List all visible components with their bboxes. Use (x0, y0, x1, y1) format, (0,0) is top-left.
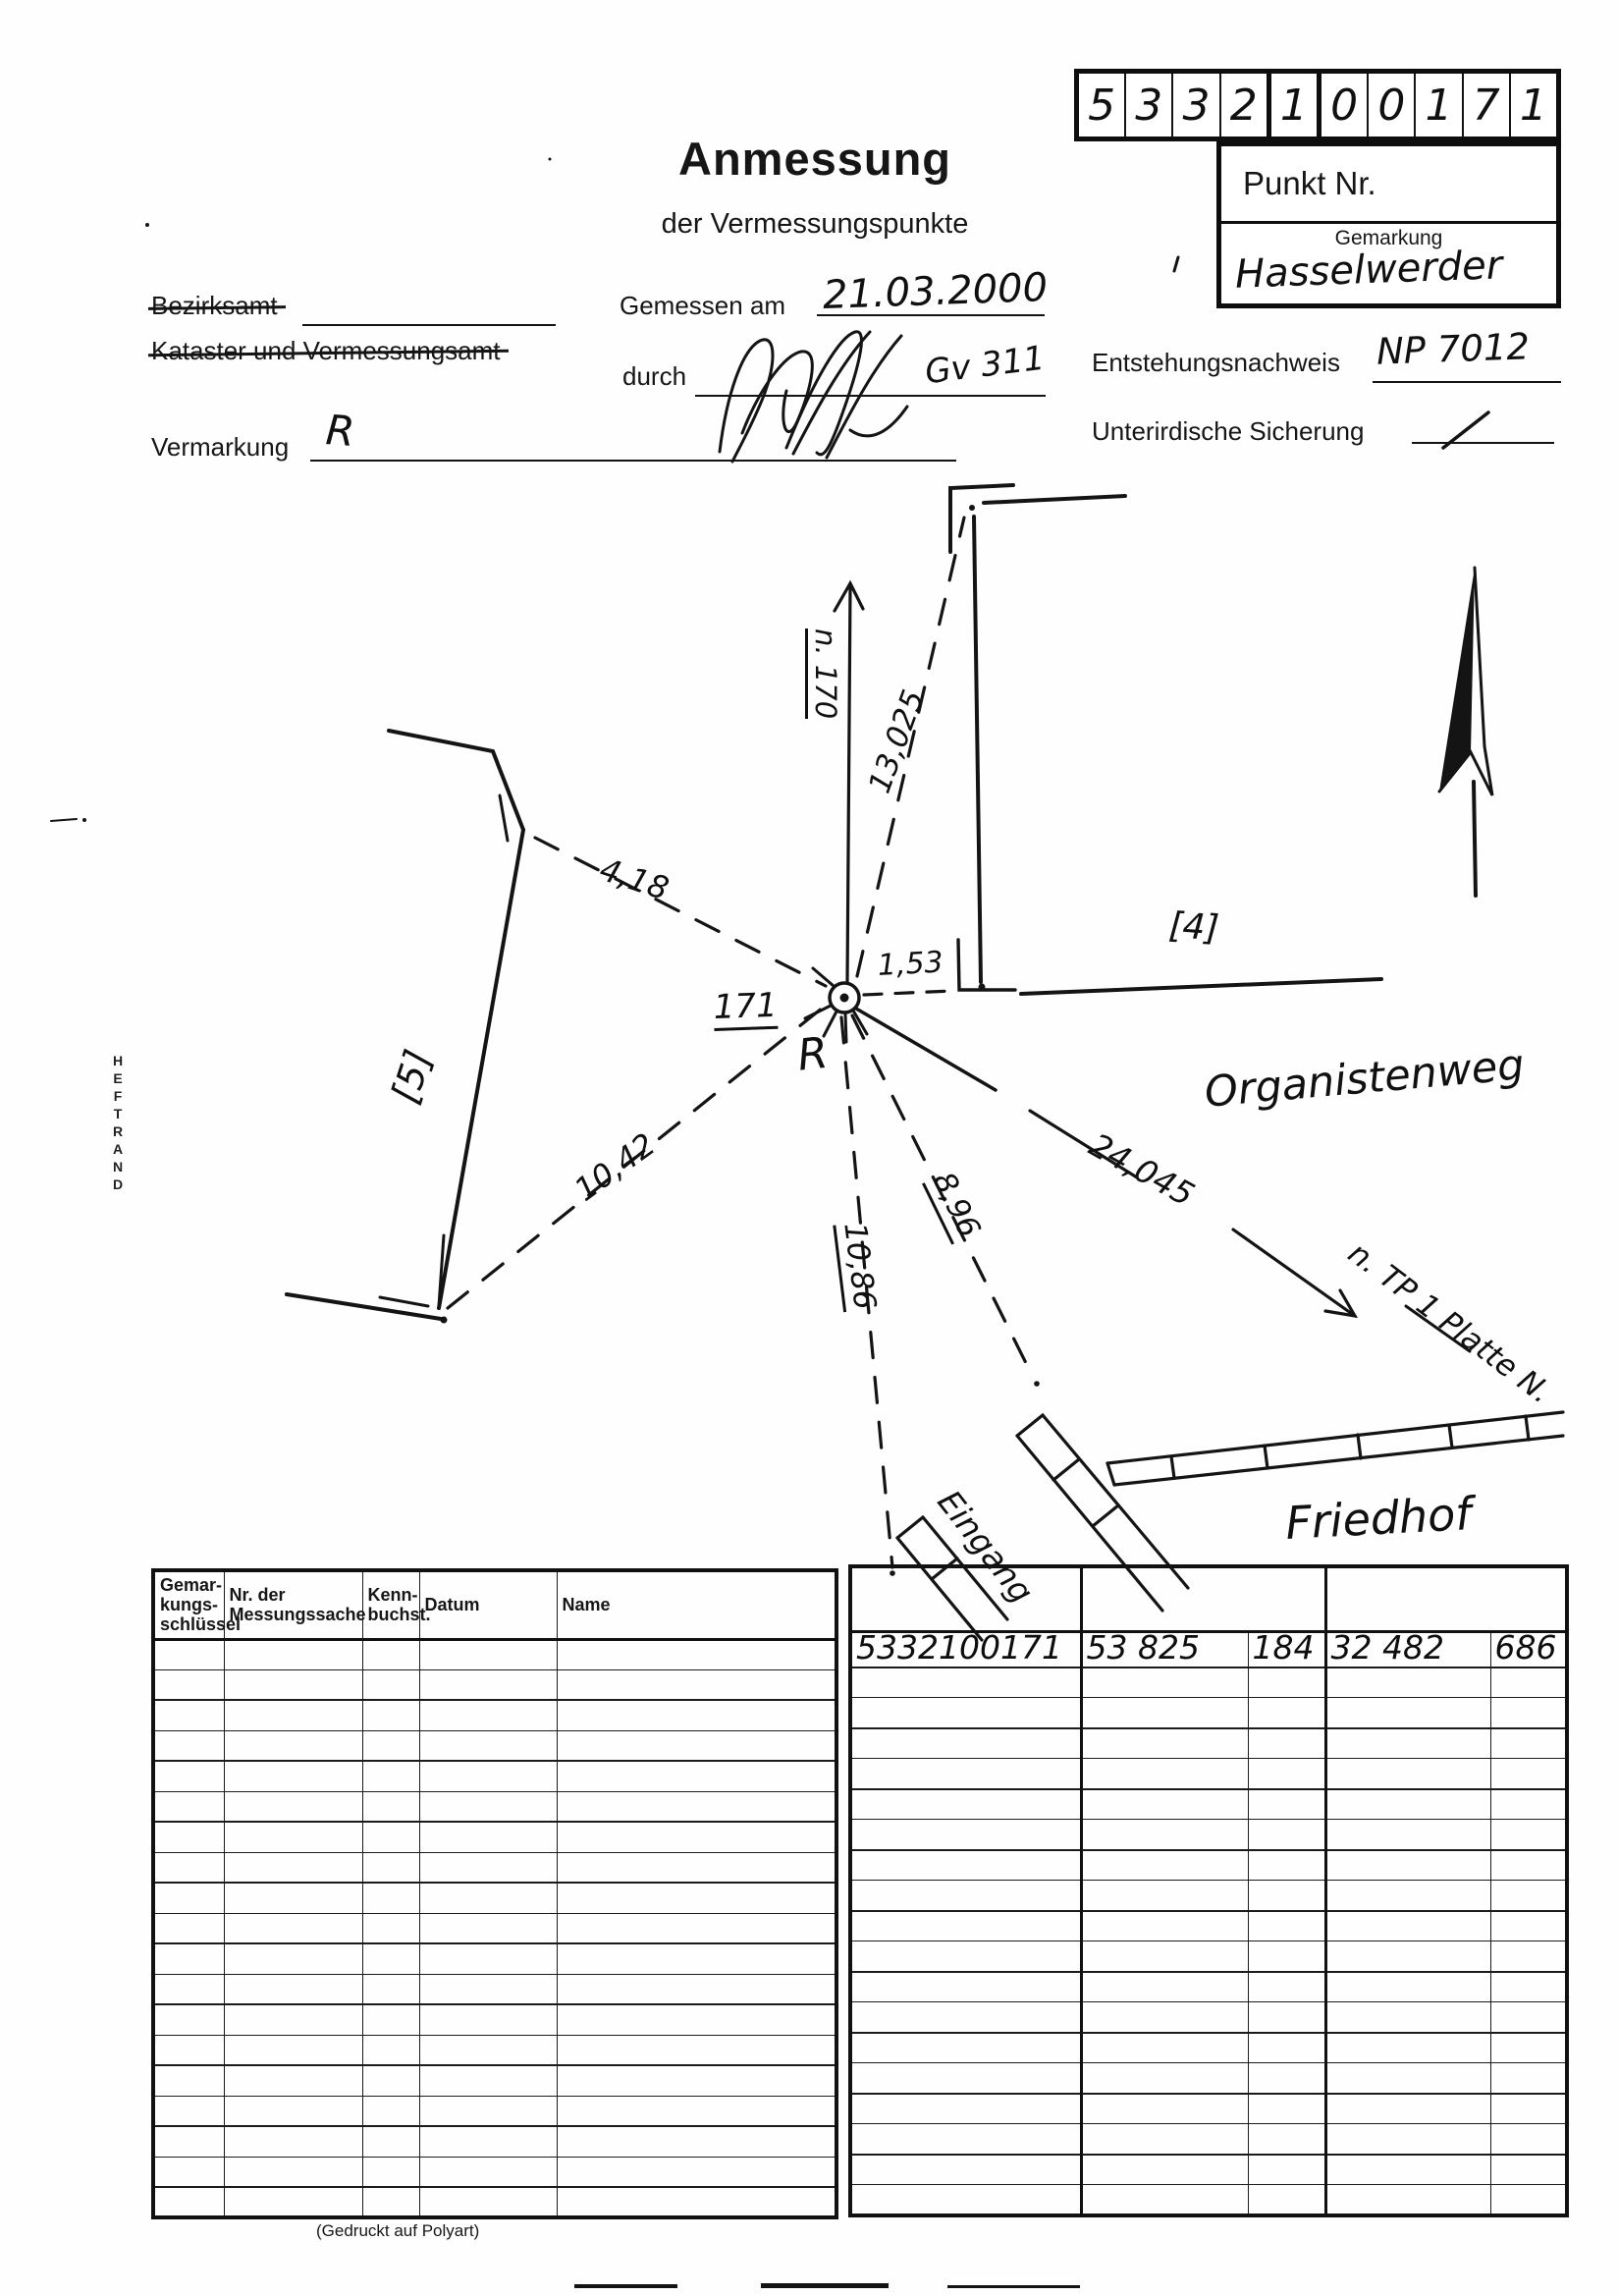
empty-cell (419, 1913, 557, 1943)
empty-cell (1248, 2002, 1325, 2033)
empty-cell (557, 2126, 836, 2157)
empty-cell (419, 1669, 557, 1700)
table-row (850, 1911, 1567, 1941)
empty-cell (850, 1667, 1081, 1698)
empty-cell (850, 2155, 1081, 2185)
empty-cell (224, 2004, 362, 2035)
empty-cell (1248, 1667, 1325, 1698)
empty-cell (1081, 2063, 1248, 2094)
measurement-dashed-lines (448, 518, 1031, 1567)
empty-cell (1081, 1728, 1248, 1759)
empty-cell (362, 2035, 419, 2065)
punkt-digit-cell: 1 (1511, 74, 1556, 137)
empty-cell (153, 1943, 224, 1974)
empty-cell (1081, 1698, 1248, 1728)
printed-on-note: (Gedruckt auf Polyart) (316, 2221, 479, 2241)
table-row (153, 2065, 836, 2096)
coordinate-value: 32 482 (1327, 1628, 1490, 1667)
empty-cell (224, 1943, 362, 1974)
table-row (153, 2035, 836, 2065)
gemarkung-box: Gemarkung Hasselwerder (1216, 224, 1561, 308)
empty-cell (1490, 1972, 1567, 2002)
distance-8-96-label: 8,96 (926, 1167, 988, 1243)
durch-label: durch (622, 361, 686, 392)
empty-cell (1325, 2185, 1490, 2215)
gemessen-am-line (817, 314, 1045, 316)
empty-cell (1490, 1698, 1567, 1728)
empty-cell (1081, 1820, 1248, 1850)
scanned-survey-form: Anmessung der Vermessungspunkte 53321001… (0, 0, 1618, 2296)
empty-cell (362, 1761, 419, 1791)
table-row (153, 1791, 836, 1822)
empty-cell (850, 1698, 1081, 1728)
empty-cell (419, 1639, 557, 1669)
empty-cell (557, 1822, 836, 1852)
empty-cell (1325, 1881, 1490, 1911)
table-row (850, 1698, 1567, 1728)
empty-cell (557, 1883, 836, 1913)
vermarkung-value: R (324, 406, 356, 456)
bearing-n170-label: n. 170 (809, 629, 842, 719)
empty-cell (362, 1791, 419, 1822)
empty-cell (419, 1822, 557, 1852)
empty-cell (224, 2096, 362, 2126)
empty-cell (153, 1913, 224, 1943)
table-row (153, 1852, 836, 1883)
empty-cell (1490, 1911, 1567, 1941)
empty-cell (1325, 1789, 1490, 1820)
empty-cell (1325, 2033, 1490, 2063)
empty-cell (224, 2157, 362, 2187)
empty-cell (557, 2065, 836, 2096)
punkt-digit-cell: 5 (1079, 74, 1126, 137)
empty-cell (153, 2004, 224, 2035)
empty-cell (1081, 1941, 1248, 1972)
distance-24-045-label: 24,045 (1083, 1125, 1201, 1214)
empty-cell (362, 2065, 419, 2096)
empty-cell (419, 1730, 557, 1761)
column-header: Nr. der Messungssache (224, 1570, 362, 1639)
punkt-digit-cell: 3 (1173, 74, 1220, 137)
to-tp1-label: n. TP 1 Platte N. (1341, 1235, 1558, 1411)
empty-cell (850, 1820, 1081, 1850)
empty-cell (850, 1911, 1081, 1941)
table-row (850, 1881, 1567, 1911)
empty-cell (1325, 1698, 1490, 1728)
empty-cell (1248, 1881, 1325, 1911)
empty-cell (1248, 1728, 1325, 1759)
empty-cell (557, 2096, 836, 2126)
street-name-label: Organistenweg (1203, 1041, 1526, 1118)
empty-cell (1248, 2033, 1325, 2063)
table-row (153, 1700, 836, 1730)
empty-cell (1081, 1911, 1248, 1941)
empty-cell (1490, 1941, 1567, 1972)
empty-cell (1490, 1850, 1567, 1881)
punkt-digit-cell: 0 (1369, 74, 1416, 137)
empty-cell (1325, 1728, 1490, 1759)
empty-cell (1248, 1972, 1325, 2002)
empty-cell (1490, 2094, 1567, 2124)
form-title: Anmessung (589, 132, 1041, 186)
empty-cell (224, 1700, 362, 1730)
empty-cell (153, 1700, 224, 1730)
empty-cell (1248, 1759, 1325, 1789)
table-row (153, 2187, 836, 2217)
building-4-label: [4] (1167, 905, 1220, 949)
empty-cell (153, 2187, 224, 2217)
distance-13-025-label: 13,025 (862, 685, 932, 797)
empty-cell (224, 2035, 362, 2065)
empty-cell (850, 1972, 1081, 2002)
empty-cell (224, 1791, 362, 1822)
empty-cell (1081, 2124, 1248, 2155)
empty-cell (557, 1639, 836, 1669)
empty-cell (419, 1700, 557, 1730)
table-row (153, 1639, 836, 1669)
empty-cell (362, 1730, 419, 1761)
gemessen-am-value: 21.03.2000 (822, 265, 1048, 318)
empty-cell (362, 2157, 419, 2187)
table-row (850, 1566, 1567, 1631)
empty-cell (224, 1883, 362, 1913)
empty-cell (1248, 1820, 1325, 1850)
value-cell: 686 (1490, 1631, 1567, 1667)
table-row (850, 1789, 1567, 1820)
empty-cell (224, 1730, 362, 1761)
empty-cell (1325, 2002, 1490, 2033)
entstehungsnachweis-value: NP 7012 (1375, 325, 1530, 372)
vermarkung-label: Vermarkung (151, 432, 289, 463)
empty-cell (1081, 2185, 1248, 2215)
building-5-outline (287, 731, 523, 1324)
empty-cell (1325, 1667, 1490, 1698)
empty-cell (224, 1852, 362, 1883)
empty-cell (419, 2096, 557, 2126)
empty-cell (1248, 2094, 1325, 2124)
cemetery-label: Friedhof (1284, 1487, 1473, 1550)
bezirksamt-label: Bezirksamt (151, 291, 278, 321)
vermarkung-line (310, 460, 956, 462)
empty-cell (362, 1913, 419, 1943)
table-row (850, 2094, 1567, 2124)
empty-cell (1248, 2124, 1325, 2155)
punkt-nr-box: Punkt Nr. (1216, 141, 1561, 224)
empty-cell (1325, 1941, 1490, 1972)
table-row (153, 2157, 836, 2187)
empty-cell (153, 1791, 224, 1822)
gemessen-am-label: Gemessen am (620, 291, 785, 321)
empty-cell (419, 1791, 557, 1822)
empty-cell (850, 1759, 1081, 1789)
building-4-outline (950, 485, 1381, 994)
point-mark-label: R (795, 1028, 831, 1081)
punkt-digit-cell: 1 (1416, 74, 1463, 137)
empty-cell (557, 2157, 836, 2187)
unterirdische-sicherung-line (1412, 442, 1554, 444)
kataster-label: Kataster und Vermessungsamt (151, 336, 501, 366)
empty-cell (362, 1883, 419, 1913)
empty-cell (1490, 1728, 1567, 1759)
table-row (153, 1883, 836, 1913)
empty-cell (557, 1791, 836, 1822)
column-header: Name (557, 1570, 836, 1639)
entstehungsnachweis-line (1373, 381, 1561, 383)
punkt-digit-cell: 3 (1126, 74, 1173, 137)
form-subtitle: der Vermessungspunkte (589, 208, 1041, 241)
table-row (850, 1850, 1567, 1881)
empty-cell (1081, 1881, 1248, 1911)
empty-cell (557, 1761, 836, 1791)
empty-cell (224, 1822, 362, 1852)
empty-cell (1490, 2155, 1567, 2185)
empty-cell (557, 1974, 836, 2004)
empty-cell (224, 1761, 362, 1791)
empty-cell (153, 1852, 224, 1883)
empty-cell (850, 2094, 1081, 2124)
empty-cell (850, 2002, 1081, 2033)
table-row (850, 1667, 1567, 1698)
empty-cell (557, 2035, 836, 2065)
empty-cell (1325, 1566, 1567, 1631)
empty-cell (1490, 2063, 1567, 2094)
table-row (850, 1820, 1567, 1850)
distance-10-42-label: 10,42 (567, 1125, 662, 1209)
empty-cell (1325, 1911, 1490, 1941)
empty-cell (850, 1941, 1081, 1972)
empty-cell (153, 2096, 224, 2126)
empty-cell (1081, 1759, 1248, 1789)
empty-cell (1325, 2124, 1490, 2155)
building-5-label: [5] (383, 1045, 440, 1109)
table-row (850, 2155, 1567, 2185)
punkt-digit-cell: 7 (1464, 74, 1511, 137)
empty-cell (419, 2187, 557, 2217)
durch-line (695, 395, 1046, 397)
heftrand-margin-label: HEFTRAND (110, 1053, 126, 1194)
table-row (153, 1730, 836, 1761)
table-row (850, 1941, 1567, 1972)
empty-cell (850, 1566, 1081, 1631)
empty-cell (224, 2126, 362, 2157)
empty-cell (1248, 1789, 1325, 1820)
table-row (153, 2126, 836, 2157)
table-row (153, 1943, 836, 1974)
empty-cell (153, 1822, 224, 1852)
coordinate-value: 184 (1249, 1628, 1324, 1667)
value-cell: 53 825 (1081, 1631, 1248, 1667)
empty-cell (153, 1974, 224, 2004)
north-arrow-icon (1439, 568, 1492, 896)
punkt-digit-cell: 0 (1321, 74, 1369, 137)
empty-cell (419, 1943, 557, 1974)
empty-cell (557, 2187, 836, 2217)
empty-cell (1325, 1820, 1490, 1850)
table-row (153, 1669, 836, 1700)
empty-cell (1325, 1850, 1490, 1881)
empty-cell (419, 1852, 557, 1883)
empty-cell (1081, 2033, 1248, 2063)
empty-cell (557, 1943, 836, 1974)
empty-cell (1081, 1566, 1325, 1631)
empty-cell (153, 1761, 224, 1791)
empty-cell (224, 1913, 362, 1943)
empty-cell (1490, 2185, 1567, 2215)
empty-cell (419, 1883, 557, 1913)
empty-cell (153, 2065, 224, 2096)
survey-point-marker (805, 968, 996, 1090)
empty-cell (153, 2126, 224, 2157)
empty-cell (362, 2187, 419, 2217)
empty-cell (850, 1881, 1081, 1911)
distance-1-53-label: 1,53 (877, 946, 944, 983)
empty-cell (362, 2004, 419, 2035)
empty-cell (419, 2004, 557, 2035)
table-row (850, 1728, 1567, 1759)
table-row (153, 2004, 836, 2035)
punkt-digit-cell: 2 (1221, 74, 1271, 137)
empty-cell (153, 2157, 224, 2187)
empty-cell (1490, 2033, 1567, 2063)
brick-wall (1107, 1412, 1563, 1485)
empty-cell (850, 1728, 1081, 1759)
empty-cell (850, 2124, 1081, 2155)
table-row (153, 2096, 836, 2126)
value-cell: 184 (1248, 1631, 1325, 1667)
gemarkung-value: Hasselwerder (1234, 243, 1503, 297)
empty-cell (362, 1639, 419, 1669)
empty-cell (1248, 1941, 1325, 1972)
empty-cell (1081, 1972, 1248, 2002)
empty-cell (850, 1850, 1081, 1881)
column-header: Kenn- buchst. (362, 1570, 419, 1639)
empty-cell (362, 1974, 419, 2004)
point-number-label: 171 (713, 986, 778, 1027)
empty-cell (557, 1852, 836, 1883)
empty-cell (850, 2185, 1081, 2215)
table-row (850, 2033, 1567, 2063)
empty-cell (1248, 1698, 1325, 1728)
empty-cell (224, 2187, 362, 2217)
empty-cell (850, 2063, 1081, 2094)
empty-cell (1248, 1850, 1325, 1881)
table-row (153, 1761, 836, 1791)
table-row (850, 2063, 1567, 2094)
empty-cell (1490, 1820, 1567, 1850)
empty-cell (419, 2065, 557, 2096)
empty-cell (557, 1913, 836, 1943)
empty-cell (1325, 1972, 1490, 2002)
distance-4-18-label: 4,18 (595, 850, 674, 907)
empty-cell (419, 2157, 557, 2187)
empty-cell (557, 1700, 836, 1730)
empty-cell (224, 1974, 362, 2004)
empty-cell (1248, 2063, 1325, 2094)
empty-cell (557, 2004, 836, 2035)
durch-value: Gv 311 (923, 339, 1047, 393)
empty-cell (362, 2126, 419, 2157)
table-row (850, 2124, 1567, 2155)
value-cell: 32 482 (1325, 1631, 1490, 1667)
empty-cell (1248, 2185, 1325, 2215)
empty-cell (1490, 1667, 1567, 1698)
empty-cell (1325, 2155, 1490, 2185)
punkt-digit-cell: 1 (1271, 74, 1321, 137)
column-header: Gemar- kungs- schlüssel (153, 1570, 224, 1639)
empty-cell (1490, 2002, 1567, 2033)
empty-cell (1490, 1759, 1567, 1789)
empty-cell (153, 1730, 224, 1761)
coordinate-value: 53 825 (1083, 1628, 1248, 1667)
empty-cell (419, 2035, 557, 2065)
empty-cell (1325, 1759, 1490, 1789)
empty-cell (419, 1974, 557, 2004)
coordinates-row: 533210017153 82518432 482686 (850, 1631, 1567, 1667)
empty-cell (153, 2035, 224, 2065)
empty-cell (1490, 1881, 1567, 1911)
empty-cell (362, 1822, 419, 1852)
empty-cell (153, 1883, 224, 1913)
empty-cell (1081, 2155, 1248, 2185)
empty-cell (1081, 1667, 1248, 1698)
empty-cell (1081, 1850, 1248, 1881)
table-row (153, 1913, 836, 1943)
empty-cell (224, 2065, 362, 2096)
punkt-nr-label: Punkt Nr. (1221, 165, 1376, 202)
empty-cell (1490, 2124, 1567, 2155)
empty-cell (362, 1943, 419, 1974)
empty-cell (153, 1669, 224, 1700)
empty-cell (1325, 2063, 1490, 2094)
empty-cell (362, 1852, 419, 1883)
gate-corner-dot (1034, 1381, 1040, 1387)
table-row (850, 1972, 1567, 2002)
table-row (850, 2185, 1567, 2215)
empty-cell (1490, 1789, 1567, 1820)
empty-cell (557, 1669, 836, 1700)
coordinate-value: 686 (1491, 1628, 1566, 1667)
measurement-log-table: Gemar- kungs- schlüsselNr. der Messungss… (151, 1568, 838, 2219)
column-header: Datum (419, 1570, 557, 1639)
empty-cell (362, 2096, 419, 2126)
table-row (153, 1822, 836, 1852)
empty-cell (1248, 1911, 1325, 1941)
empty-cell (419, 2126, 557, 2157)
empty-cell (850, 2033, 1081, 2063)
bezirksamt-blank-line (302, 324, 556, 326)
entstehungsnachweis-label: Entstehungsnachweis (1092, 348, 1340, 378)
empty-cell (1248, 2155, 1325, 2185)
distance-10-86-label: 10,86 (836, 1221, 883, 1311)
empty-cell (362, 1669, 419, 1700)
value-cell: 5332100171 (850, 1631, 1081, 1667)
table-row (850, 2002, 1567, 2033)
empty-cell (1081, 1789, 1248, 1820)
table-row (153, 1974, 836, 2004)
empty-cell (419, 1761, 557, 1791)
empty-cell (153, 1639, 224, 1669)
empty-cell (362, 1700, 419, 1730)
unterirdische-sicherung-label: Unterirdische Sicherung (1092, 416, 1364, 447)
table-row (850, 1759, 1567, 1789)
empty-cell (557, 1730, 836, 1761)
empty-cell (1325, 2094, 1490, 2124)
empty-cell (1081, 2002, 1248, 2033)
coordinate-value: 5332100171 (852, 1628, 1080, 1667)
empty-cell (224, 1669, 362, 1700)
empty-cell (1081, 2094, 1248, 2124)
empty-cell (850, 1789, 1081, 1820)
